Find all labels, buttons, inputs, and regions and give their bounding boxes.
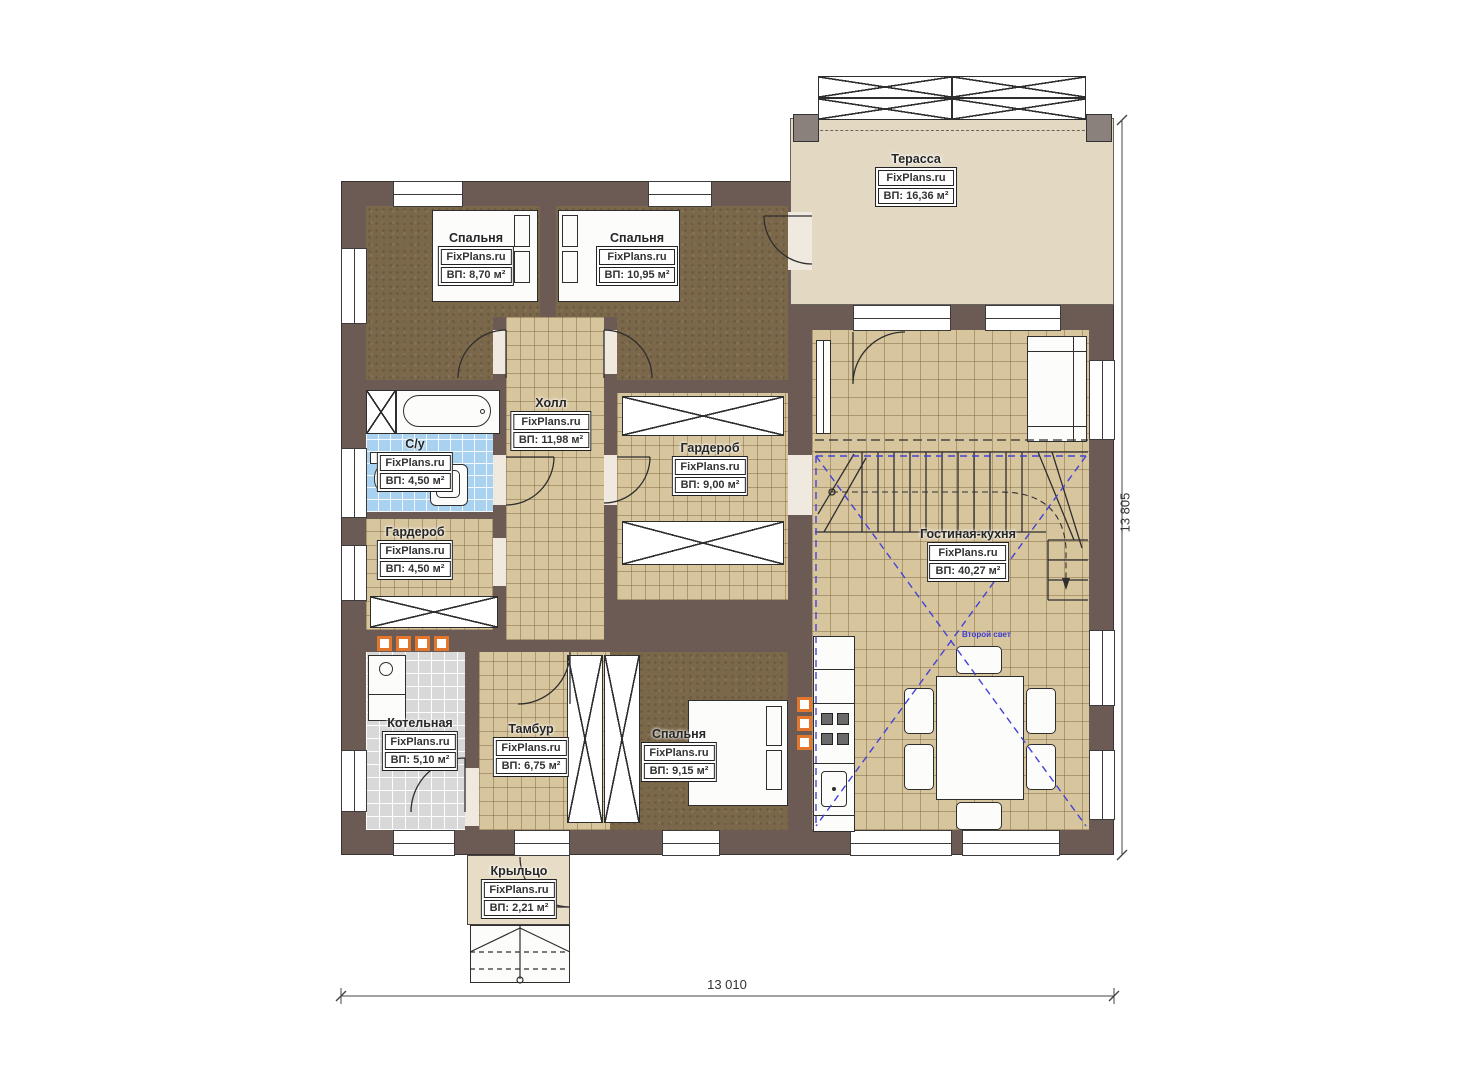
vent-marker <box>377 636 392 651</box>
terrace-floor <box>790 118 1114 305</box>
door-opening <box>493 455 506 505</box>
bathtub-drain <box>480 409 485 414</box>
area-label: ВП: 4,50 м² <box>379 561 450 578</box>
room-label-boiler: Котельная FixPlans.ru ВП: 5,10 м² <box>382 716 458 771</box>
pergola-beam <box>818 98 952 120</box>
counter-divider <box>814 815 854 816</box>
pergola-beam <box>818 76 952 98</box>
sink-drain <box>832 787 836 791</box>
porch-steps <box>470 925 570 983</box>
boiler-dial <box>379 662 393 676</box>
pergola-beam <box>952 76 1086 98</box>
brand-label: FixPlans.ru <box>440 249 511 266</box>
wardrobe-closet <box>567 655 603 823</box>
terrace-roof-edge-line <box>795 130 1110 131</box>
sofa-armrest-line <box>1028 426 1086 427</box>
wardrobe-closet <box>622 521 784 565</box>
sofa-armrest-line <box>1028 351 1086 352</box>
brand-label: FixPlans.ru <box>674 459 745 476</box>
pergola-beam <box>952 98 1086 120</box>
counter-divider <box>814 763 854 764</box>
brand-label: FixPlans.ru <box>930 545 1007 562</box>
door-opening <box>493 330 506 374</box>
brand-label: FixPlans.ru <box>599 249 676 266</box>
chair <box>1026 744 1056 790</box>
room-label-porch: Крыльцо FixPlans.ru ВП: 2,21 м² <box>481 864 557 919</box>
window <box>341 750 367 812</box>
door-opening <box>788 212 812 270</box>
area-label: ВП: 9,15 м² <box>643 763 714 780</box>
stove-burner <box>837 733 849 745</box>
terrace-door-opening <box>853 305 951 331</box>
room-label-bedroom-3: Спальня FixPlans.ru ВП: 9,15 м² <box>641 727 717 782</box>
area-label: ВП: 11,98 м² <box>513 432 589 449</box>
porch-door-opening <box>514 830 570 856</box>
door-opening <box>604 330 617 374</box>
pillow <box>514 251 530 283</box>
room-label-terrace: Терасса FixPlans.ru ВП: 16,36 м² <box>875 152 957 207</box>
area-label: ВП: 10,95 м² <box>599 267 676 284</box>
vent-marker <box>797 716 812 731</box>
window <box>341 248 367 324</box>
stove-burner <box>837 713 849 725</box>
chair <box>956 646 1002 674</box>
window <box>662 830 720 856</box>
vent-marker <box>797 735 812 750</box>
brand-label: FixPlans.ru <box>483 882 554 899</box>
brand-label: FixPlans.ru <box>384 734 455 751</box>
stove-burner <box>821 713 833 725</box>
dining-table <box>936 676 1024 800</box>
stove-burner <box>821 733 833 745</box>
window <box>648 181 712 207</box>
pillow <box>514 215 530 247</box>
sliding-door <box>962 830 1060 856</box>
door-opening <box>493 538 506 586</box>
chair <box>1026 688 1056 734</box>
brand-label: FixPlans.ru <box>495 740 566 757</box>
floor-plan: Терасса FixPlans.ru ВП: 16,36 м² Спальня… <box>0 0 1473 1080</box>
terrace-post <box>793 114 819 142</box>
area-label: ВП: 16,36 м² <box>878 188 955 205</box>
door-opening <box>604 455 617 505</box>
kitchen-sink <box>821 771 847 807</box>
area-label: ВП: 4,50 м² <box>379 473 450 490</box>
area-label: ВП: 40,27 м² <box>930 563 1007 580</box>
counter-divider <box>814 703 854 704</box>
area-label: ВП: 8,70 м² <box>440 267 511 284</box>
brand-label: FixPlans.ru <box>379 455 450 472</box>
brand-label: FixPlans.ru <box>513 414 589 431</box>
window <box>1089 360 1115 440</box>
kitchen-counter <box>813 636 855 832</box>
window <box>1089 750 1115 820</box>
area-label: ВП: 5,10 м² <box>384 752 455 769</box>
vent-marker <box>797 697 812 712</box>
bathtub <box>396 390 500 434</box>
window <box>393 181 463 207</box>
second-light-label: Второй свет <box>962 630 1011 639</box>
wardrobe-closet <box>604 655 640 823</box>
vent-marker <box>434 636 449 651</box>
bathtub-basin <box>403 395 491 427</box>
chair <box>904 744 934 790</box>
terrace-post <box>1086 114 1112 142</box>
sofa <box>1027 336 1087 442</box>
wardrobe-closet <box>622 396 784 436</box>
room-label-wardrobe-center: Гардероб FixPlans.ru ВП: 9,00 м² <box>672 441 748 496</box>
pillow <box>766 706 782 746</box>
washing-machine <box>366 390 396 434</box>
area-label: ВП: 9,00 м² <box>674 477 745 494</box>
brand-label: FixPlans.ru <box>379 543 450 560</box>
area-label: ВП: 2,21 м² <box>483 900 554 917</box>
vent-marker <box>415 636 430 651</box>
window <box>341 448 367 518</box>
boiler-divider <box>369 694 405 695</box>
window <box>985 305 1061 331</box>
area-label: ВП: 6,75 м² <box>495 758 566 775</box>
wardrobe-closet <box>370 596 498 628</box>
room-label-bedroom-2: Спальня FixPlans.ru ВП: 10,95 м² <box>596 231 678 286</box>
window <box>1089 630 1115 706</box>
window <box>341 545 367 601</box>
door-opening <box>788 455 812 515</box>
boiler-unit <box>368 655 406 721</box>
room-label-bedroom-1: Спальня FixPlans.ru ВП: 8,70 м² <box>438 231 514 286</box>
sliding-door <box>850 830 952 856</box>
window <box>393 830 455 856</box>
pillow <box>562 215 578 247</box>
room-label-hall: Холл FixPlans.ru ВП: 11,98 м² <box>510 396 591 451</box>
hall-floor <box>506 317 604 640</box>
pillow <box>766 750 782 790</box>
dimension-height-label: 13 805 <box>1118 484 1133 542</box>
room-label-wardrobe-left: Гардероб FixPlans.ru ВП: 4,50 м² <box>377 525 453 580</box>
dimension-width-label: 13 010 <box>687 977 767 992</box>
room-label-vestibule: Тамбур FixPlans.ru ВП: 6,75 м² <box>493 722 569 777</box>
radiator-line <box>823 341 824 433</box>
door-opening <box>465 768 479 826</box>
room-label-bathroom: С/у FixPlans.ru ВП: 4,50 м² <box>377 437 453 492</box>
radiator <box>816 340 831 434</box>
brand-label: FixPlans.ru <box>878 170 955 187</box>
chair <box>956 802 1002 830</box>
counter-divider <box>814 669 854 670</box>
pillow <box>562 251 578 283</box>
room-label-living-kitchen: Гостиная-кухня FixPlans.ru ВП: 40,27 м² <box>920 527 1016 582</box>
chair <box>904 688 934 734</box>
vent-marker <box>396 636 411 651</box>
brand-label: FixPlans.ru <box>643 745 714 762</box>
